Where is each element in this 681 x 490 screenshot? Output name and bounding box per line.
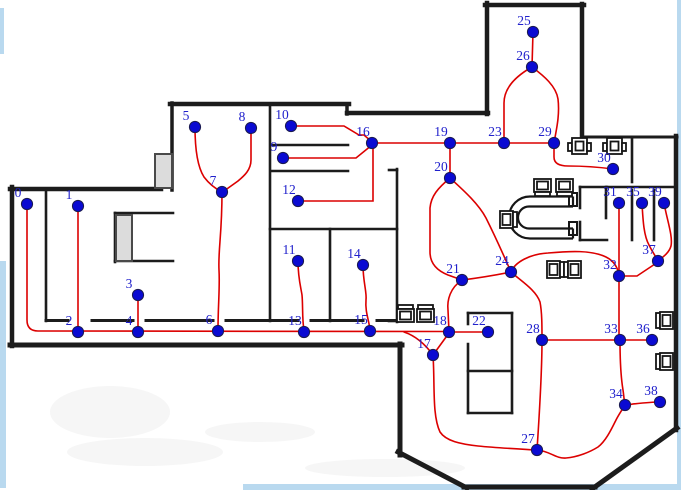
map-node-label-29: 29 <box>538 124 552 139</box>
map-node-13[interactable] <box>298 326 309 337</box>
chair-icon-6 <box>417 305 434 322</box>
chair-back <box>557 192 572 196</box>
smudge-3 <box>50 386 170 438</box>
chair-icon-2 <box>500 211 517 228</box>
map-node-label-22: 22 <box>472 313 486 328</box>
map-node-28[interactable] <box>536 334 547 345</box>
chair-icon-0 <box>534 179 551 196</box>
map-node-label-2: 2 <box>66 313 73 328</box>
chair-seat <box>663 356 671 367</box>
chair-icon-4 <box>564 261 581 278</box>
chair-seat <box>503 214 511 225</box>
map-node-label-33: 33 <box>604 321 618 336</box>
map-node-label-32: 32 <box>603 257 617 272</box>
chair-seat <box>571 264 579 275</box>
door-rect-0 <box>155 154 172 188</box>
map-node-label-30: 30 <box>597 150 611 165</box>
map-node-label-26: 26 <box>516 48 530 63</box>
map-node-label-0: 0 <box>15 185 22 200</box>
map-node-label-4: 4 <box>126 313 133 328</box>
chair-icon-1 <box>556 179 573 196</box>
map-node-20[interactable] <box>444 172 455 183</box>
chair-seat <box>559 182 570 190</box>
map-node-label-10: 10 <box>275 107 289 122</box>
map-node-36[interactable] <box>646 334 657 345</box>
chair-seat <box>420 312 431 320</box>
chair-icon-10 <box>656 353 673 370</box>
map-node-35[interactable] <box>636 197 647 208</box>
smudge-2 <box>205 422 315 442</box>
map-node-label-31: 31 <box>603 184 617 199</box>
chair-seat <box>400 312 411 320</box>
map-node-16[interactable] <box>366 137 377 148</box>
door-inner <box>611 142 619 151</box>
floor-plan-svg: 0123456789101112131415161718192021222324… <box>0 0 681 490</box>
map-node-label-19: 19 <box>434 124 448 139</box>
map-node-12[interactable] <box>292 195 303 206</box>
map-node-label-11: 11 <box>283 242 296 257</box>
map-node-label-8: 8 <box>239 109 246 124</box>
map-node-5[interactable] <box>189 121 200 132</box>
map-node-3[interactable] <box>132 289 143 300</box>
map-node-22[interactable] <box>482 326 493 337</box>
map-node-label-18: 18 <box>433 313 447 328</box>
map-node-label-16: 16 <box>356 124 370 139</box>
map-node-label-34: 34 <box>609 386 623 401</box>
map-node-27[interactable] <box>531 444 542 455</box>
chair-icon-3 <box>547 261 564 278</box>
map-node-32[interactable] <box>613 270 624 281</box>
map-node-label-20: 20 <box>434 159 448 174</box>
map-node-label-14: 14 <box>347 246 361 261</box>
map-node-label-13: 13 <box>288 313 302 328</box>
map-node-31[interactable] <box>613 197 624 208</box>
map-node-0[interactable] <box>21 198 32 209</box>
map-node-label-3: 3 <box>126 276 133 291</box>
chair-seat <box>537 182 548 190</box>
map-node-label-21: 21 <box>446 261 460 276</box>
map-node-37[interactable] <box>652 255 663 266</box>
floor-plan-map: 0123456789101112131415161718192021222324… <box>0 0 681 490</box>
map-node-38[interactable] <box>654 396 665 407</box>
map-node-30[interactable] <box>607 163 618 174</box>
chair-back <box>535 192 550 196</box>
map-node-label-9: 9 <box>271 139 278 154</box>
map-node-label-39: 39 <box>648 184 662 199</box>
chair-back <box>513 212 517 227</box>
map-node-21[interactable] <box>456 274 467 285</box>
frame-strip-2 <box>0 261 6 488</box>
map-node-label-28: 28 <box>526 321 540 336</box>
chair-icon-5 <box>397 305 414 322</box>
map-node-label-35: 35 <box>626 184 640 199</box>
map-node-10[interactable] <box>285 120 296 131</box>
map-node-label-5: 5 <box>183 108 190 123</box>
door-rect-1 <box>116 215 132 261</box>
map-node-label-36: 36 <box>636 321 650 336</box>
map-node-label-25: 25 <box>517 13 531 28</box>
map-node-15[interactable] <box>364 325 375 336</box>
smudge-0 <box>67 438 223 466</box>
door-symbol-icon-7 <box>568 138 591 154</box>
chair-seat <box>550 264 558 275</box>
map-node-17[interactable] <box>427 349 438 360</box>
door-tab-right <box>587 143 591 151</box>
map-node-29[interactable] <box>548 137 559 148</box>
map-node-label-38: 38 <box>644 383 658 398</box>
map-node-label-37: 37 <box>642 242 656 257</box>
map-node-24[interactable] <box>505 266 516 277</box>
map-node-34[interactable] <box>619 399 630 410</box>
map-node-39[interactable] <box>658 197 669 208</box>
map-node-label-24: 24 <box>495 253 509 268</box>
map-node-label-1: 1 <box>66 187 73 202</box>
map-node-14[interactable] <box>357 259 368 270</box>
map-node-label-6: 6 <box>206 312 213 327</box>
door-tab-right <box>622 143 626 151</box>
map-node-33[interactable] <box>614 334 625 345</box>
map-node-19[interactable] <box>444 137 455 148</box>
map-node-8[interactable] <box>245 122 256 133</box>
map-node-9[interactable] <box>277 152 288 163</box>
frame-strip-3 <box>0 8 4 54</box>
map-node-11[interactable] <box>292 255 303 266</box>
chair-seat <box>663 315 671 326</box>
chair-icon-9 <box>656 312 673 329</box>
map-node-label-12: 12 <box>282 182 296 197</box>
map-node-4[interactable] <box>132 326 143 337</box>
map-node-6[interactable] <box>212 325 223 336</box>
map-node-18[interactable] <box>443 326 454 337</box>
map-node-2[interactable] <box>72 326 83 337</box>
map-node-label-7: 7 <box>210 173 217 188</box>
door-inner <box>576 142 584 151</box>
map-node-label-23: 23 <box>488 124 502 139</box>
map-node-label-17: 17 <box>417 336 431 351</box>
map-node-label-27: 27 <box>521 431 535 446</box>
map-node-1[interactable] <box>72 200 83 211</box>
map-node-25[interactable] <box>527 26 538 37</box>
map-node-label-15: 15 <box>354 312 368 327</box>
map-node-7[interactable] <box>216 186 227 197</box>
map-node-23[interactable] <box>498 137 509 148</box>
map-node-26[interactable] <box>526 61 537 72</box>
